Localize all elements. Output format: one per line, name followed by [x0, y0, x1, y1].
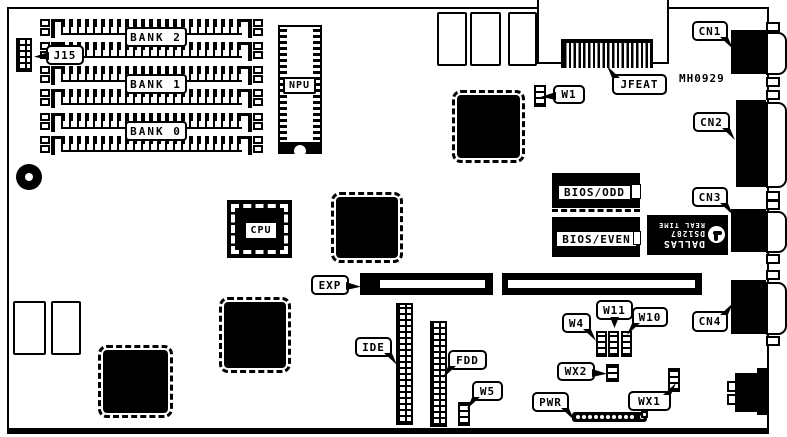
ide-header	[396, 303, 413, 425]
exp-label: EXP	[311, 275, 349, 295]
w10-label: W10	[632, 307, 668, 327]
wx2-label-text: WX2	[565, 365, 588, 378]
bios-odd-label-text: BIOS/ODD	[564, 186, 625, 199]
cn1-dsub-shell	[766, 32, 787, 75]
w5-jumper	[458, 402, 470, 426]
fdd-label-text: FDD	[456, 354, 479, 367]
bank0-label: BANK 0	[125, 121, 187, 141]
bios-even-chip: BIOS/EVEN	[552, 217, 640, 257]
bios-odd-chip: BIOS/ODD	[552, 173, 640, 208]
cpu-label: CPU	[244, 221, 278, 240]
cn3-mount-tab	[766, 200, 780, 210]
keyboard-connector-shell	[757, 368, 767, 415]
cn3-label-text: CN3	[699, 191, 722, 204]
cn4-mount-tab	[766, 270, 780, 280]
cn2-connector	[736, 100, 766, 187]
cpu-socket: CPU	[227, 200, 292, 258]
jfeat-label-text: JFEAT	[620, 78, 658, 91]
qfp-chip	[457, 95, 520, 158]
w10-jumper	[621, 331, 632, 357]
solder-hole	[641, 411, 648, 418]
qfp-chip	[336, 197, 398, 258]
pwr-label-text: PWR	[539, 396, 562, 409]
bank2-label-text: BANK 2	[130, 31, 182, 44]
wx1-label-text: WX1	[638, 395, 661, 408]
cn1-mount-tab	[766, 77, 780, 87]
ide-label: IDE	[355, 337, 392, 357]
cn3-label: CN3	[692, 187, 728, 207]
cn2-label: CN2	[693, 112, 730, 132]
bank0-label-text: BANK 0	[130, 125, 182, 138]
ide-label-text: IDE	[362, 341, 385, 354]
cn4-mount-tab	[766, 336, 780, 346]
w11-label-text: W11	[603, 304, 626, 317]
board-id-value: MH0929	[679, 72, 725, 85]
cn4-dsub-shell	[766, 282, 787, 335]
wx1-jumper	[668, 368, 680, 392]
cn2-dsub-shell	[766, 102, 787, 188]
wx2-jumper	[606, 364, 619, 382]
fdd-label: FDD	[448, 350, 487, 370]
w11-label: W11	[596, 300, 633, 320]
rtc-model-text: DS1287	[658, 230, 705, 238]
w4-label: W4	[562, 313, 591, 333]
cpu-label-text: CPU	[250, 225, 271, 236]
exp-label-text: EXP	[319, 279, 342, 292]
cn1-label: CN1	[692, 21, 728, 41]
power-connector-pins	[576, 415, 580, 419]
bios-even-label-text: BIOS/EVEN	[562, 233, 631, 246]
bank2-label: BANK 2	[125, 27, 187, 47]
keyboard-connector-pin	[727, 394, 737, 405]
wx2-label: WX2	[557, 362, 595, 381]
cn4-label: CN4	[692, 311, 728, 332]
ic-socket	[437, 12, 467, 66]
power-connector	[572, 412, 647, 422]
w1-label: W1	[553, 85, 585, 104]
j15-header	[16, 38, 32, 72]
cn2-label-text: CN2	[700, 116, 723, 129]
board-id-text: MH0929	[679, 72, 725, 85]
npu-socket: NPU	[278, 25, 322, 154]
ic-socket	[508, 12, 537, 66]
npu-label: NPU	[283, 77, 316, 94]
w1-label-text: W1	[561, 88, 576, 101]
bank1-label-text: BANK 1	[130, 78, 182, 91]
rtc-chip: DALLAS DS1287 REAL TIME	[647, 215, 728, 255]
cn1-mount-tab	[766, 22, 780, 32]
bios-even-label: BIOS/EVEN	[555, 230, 638, 248]
cn1-connector	[731, 30, 766, 74]
j15-label: J15	[46, 45, 84, 65]
ic-socket	[13, 301, 46, 355]
w11-jumper	[608, 331, 619, 357]
w5-label: W5	[472, 381, 503, 401]
cn2-mount-tab	[766, 90, 780, 100]
w5-label-text: W5	[480, 385, 495, 398]
w10-label-text: W10	[639, 311, 662, 324]
motherboard-diagram: JFEAT BANK 2 BANK 1 BANK 0 J15	[0, 0, 787, 437]
bios-socket-divider	[552, 209, 640, 212]
qfp-chip	[224, 302, 286, 368]
w4-label-text: W4	[569, 317, 584, 330]
rtc-type-text: REAL TIME	[658, 222, 705, 229]
jfeat-label: JFEAT	[612, 74, 667, 95]
ic-socket	[470, 12, 501, 66]
cn3-dsub-shell	[766, 211, 787, 253]
pwr-label: PWR	[532, 392, 569, 412]
bank1-label: BANK 1	[125, 74, 187, 94]
cn1-label-text: CN1	[699, 25, 722, 38]
rtc-logo	[708, 227, 725, 244]
expansion-slot-segment	[360, 273, 493, 295]
fdd-header	[430, 321, 447, 427]
bios-odd-label: BIOS/ODD	[557, 184, 632, 201]
w4-jumper	[596, 331, 607, 357]
cn3-connector	[731, 209, 766, 252]
jfeat-connector	[561, 39, 653, 68]
wx1-label: WX1	[628, 391, 671, 411]
cn4-label-text: CN4	[699, 315, 722, 328]
expansion-slot-segment	[502, 273, 702, 295]
mounting-hole	[16, 164, 42, 190]
rtc-brand-text: DALLAS	[658, 239, 705, 249]
cn4-connector	[731, 280, 766, 334]
ic-socket	[51, 301, 81, 355]
cn3-mount-tab	[766, 254, 780, 264]
j15-label-text: J15	[54, 49, 77, 62]
keyboard-connector-pin	[727, 381, 737, 392]
qfp-chip	[103, 350, 168, 413]
npu-label-text: NPU	[289, 80, 310, 91]
